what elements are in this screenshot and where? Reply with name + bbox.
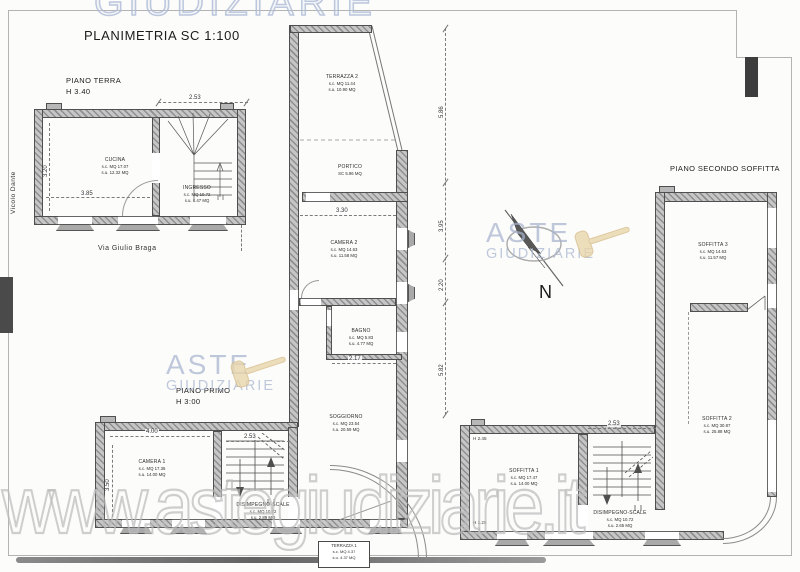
- window-opening: [645, 531, 679, 540]
- scan-artifact-left-bar: [0, 277, 13, 333]
- room-name: SOFFITTA 2: [687, 416, 747, 423]
- room-su: s.u. 25.88 MQ: [687, 429, 747, 435]
- dim-terra-depth: 3.20: [43, 165, 49, 177]
- dim-line: [112, 445, 113, 517]
- room-label-portico: PORTICO SC 5.96 MQ: [322, 164, 378, 177]
- window-sill: [120, 527, 152, 534]
- door-opening: [306, 192, 330, 202]
- dim-line: [110, 436, 210, 437]
- wall-chimney: [471, 419, 485, 426]
- dim-line: [46, 197, 150, 198]
- dim-terra-top: 2.53: [188, 95, 202, 101]
- door-opening: [326, 310, 332, 326]
- room-su: s.u. 2.89 MQ: [233, 515, 293, 521]
- dim-tick: [244, 99, 250, 107]
- wall: [655, 192, 777, 202]
- dim-terra-width: 3.85: [80, 191, 94, 197]
- door-opening: [289, 290, 299, 310]
- room-name: CAMERA 1: [122, 459, 182, 466]
- height-label-bottom: H 1.25: [473, 521, 487, 526]
- dim-line: [226, 441, 290, 442]
- dim-line: [588, 428, 656, 429]
- room-name: TERRAZZA 2: [314, 74, 370, 81]
- room-su: s.u. 4.37 MQ: [319, 555, 369, 561]
- dim-line: [158, 102, 248, 103]
- floor-label-primo: PIANO PRIMO H 3:00: [176, 386, 230, 407]
- page-border-step: [736, 10, 737, 57]
- wall: [460, 425, 655, 434]
- door-opening: [152, 153, 160, 183]
- room-su: s.u. 14.00 MQ: [122, 472, 182, 478]
- page-title: PLANIMETRIA SC 1:100: [84, 28, 240, 43]
- door-sill: [116, 224, 160, 231]
- room-name: CAMERA 2: [316, 240, 372, 247]
- room-label-disimpegno-primo: DISIMPEGNO-SCALE s.c. MQ 10.72 s.u. 2.89…: [233, 502, 293, 520]
- room-label-ingresso: INGRESSO s.c. MQ 10.72 s.u. 8.47 MQ: [169, 185, 225, 203]
- door-opening: [301, 298, 321, 306]
- dim-portico-width: 3.30: [335, 208, 349, 214]
- room-name: SOFFITTA 1: [494, 468, 554, 475]
- room-name: BAGNO: [333, 328, 389, 335]
- room-su: s.u. 11.58 MQ: [316, 253, 372, 259]
- north-arrow: N: [497, 198, 577, 302]
- room-su: s.u. 11.57 MQ: [683, 255, 743, 261]
- plan-piano-terra: 2.53 CUCINA s.c. MQ 1: [30, 95, 260, 260]
- window-sill: [188, 224, 228, 231]
- window-opening: [190, 216, 226, 225]
- window-opening: [396, 332, 408, 352]
- window-sill: [56, 224, 94, 231]
- window-sill: [270, 527, 302, 534]
- window-opening: [396, 282, 408, 304]
- window-sill: [643, 539, 681, 546]
- window-opening: [767, 208, 777, 248]
- wall-internal: [690, 303, 748, 312]
- floor-secondo-name: PIANO SECONDO SOFFITTA: [670, 164, 780, 173]
- room-su: s.u. 2.65 MQ: [590, 523, 650, 529]
- wall-chimney: [220, 103, 234, 110]
- dim-chain-line: [445, 28, 446, 415]
- room-label-disimpegno-secondo: DISIMPEGNO-SCALE s.c. MQ 10.72 s.u. 2.65…: [590, 510, 650, 528]
- projection-line: [241, 225, 242, 251]
- room-su: s.u. 10.90 MQ: [314, 87, 370, 93]
- dim-soffitta-stairs-width: 2.53: [607, 421, 621, 427]
- plan-piano-primo-lower: CAMERA 1 s.c. MQ 17.36 s.u. 14.00 MQ DIS…: [88, 415, 440, 572]
- room-label-soffitta3: SOFFITTA 3 s.c. MQ 14.63 s.u. 11.57 MQ: [683, 242, 743, 260]
- door-opening: [213, 497, 222, 519]
- height-label-top: H 2.45: [473, 437, 487, 442]
- room-label-terrazza1: TERRAZZA 1 s.c. MQ 4.37 s.u. 4.37 MQ: [318, 541, 370, 568]
- window-sill: [495, 539, 529, 546]
- wall: [237, 109, 246, 225]
- wall-bagno: [326, 354, 402, 360]
- dim-chain-3: 2.20: [439, 279, 445, 291]
- window-opening: [58, 216, 92, 225]
- floor-label-secondo: PIANO SECONDO SOFFITTA: [650, 164, 800, 175]
- window-opening: [272, 519, 300, 528]
- room-label-camera1: CAMERA 1 s.c. MQ 17.36 s.u. 14.00 MQ: [122, 459, 182, 477]
- window-opening: [396, 228, 408, 250]
- window-opening: [545, 531, 593, 540]
- window-sill: [170, 527, 207, 534]
- room-name: SOFFITTA 3: [683, 242, 743, 249]
- dim-chain-4: 5.82: [439, 364, 445, 376]
- room-name: CUCINA: [87, 157, 143, 164]
- dim-chain-1: 5.86: [439, 106, 445, 118]
- door-opening: [118, 216, 158, 225]
- room-sc: SC 5.96 MQ: [322, 171, 378, 177]
- room-su: s.u. 8.47 MQ: [169, 198, 225, 204]
- floor-primo-name: PIANO PRIMO: [176, 386, 230, 397]
- dim-camera1-depth: 3.50: [105, 479, 111, 491]
- scan-artifact-top-right: [745, 57, 758, 97]
- room-label-soffitta2: SOFFITTA 2 s.c. MQ 30.87 s.u. 25.88 MQ: [687, 416, 747, 434]
- room-label-terrazza2: TERRAZZA 2 s.c. MQ 11.44 s.u. 10.90 MQ: [314, 74, 370, 92]
- room-name: PORTICO: [322, 164, 378, 171]
- room-name: DISIMPEGNO-SCALE: [233, 502, 293, 509]
- room-name: DISIMPEGNO-SCALE: [590, 510, 650, 517]
- wall-chimney: [46, 103, 62, 110]
- wall: [460, 425, 470, 540]
- room-su: s.u. 14.00 MQ: [494, 481, 554, 487]
- curved-wall-inner: [723, 497, 771, 539]
- door-swing-lines: [745, 292, 769, 312]
- dim-bagno-width: 2.17: [348, 356, 362, 362]
- north-label: N: [539, 282, 552, 302]
- room-label-bagno: BAGNO s.c. MQ 5.83 s.u. 4.77 MQ: [333, 328, 389, 346]
- window-opening: [497, 531, 527, 540]
- door-swing-arc: [122, 180, 158, 216]
- scanned-floorplan-page: PLANIMETRIA SC 1:100 PIANO TERRA H 3.40 …: [0, 0, 800, 572]
- wall: [290, 25, 372, 33]
- page-border-top: [8, 10, 736, 11]
- window-opening: [122, 519, 150, 528]
- street-label-vicolo-dante: Vicolo Dante: [10, 150, 17, 214]
- room-su: s.u. 12.32 MQ: [87, 170, 143, 176]
- window-opening: [767, 420, 777, 492]
- wall: [95, 422, 298, 431]
- wall: [34, 109, 43, 225]
- dim-line: [300, 215, 396, 216]
- floor-terra-name: PIANO TERRA: [66, 76, 121, 87]
- floor-primo-height: H 3:00: [176, 397, 230, 408]
- dim-line: [332, 363, 396, 364]
- wall: [655, 192, 665, 510]
- window-opening: [172, 519, 205, 528]
- room-label-soffitta1: SOFFITTA 1 s.c. MQ 17.47 s.u. 14.00 MQ: [494, 468, 554, 486]
- door-opening: [578, 505, 588, 531]
- dim-chain-2: 3.95: [439, 220, 445, 232]
- partition-dashed-line: [688, 312, 689, 424]
- room-label-cucina: CUCINA s.c. MQ 17.07 s.u. 12.32 MQ: [87, 157, 143, 175]
- wall: [289, 25, 299, 427]
- room-su: s.u. 4.77 MQ: [333, 341, 389, 347]
- room-label-camera2: CAMERA 2 s.c. MQ 14.63 s.u. 11.58 MQ: [316, 240, 372, 258]
- dim-camera1-width: 4.00: [145, 429, 159, 435]
- room-name: INGRESSO: [169, 185, 225, 192]
- wall: [95, 422, 105, 528]
- window-sill: [543, 539, 595, 546]
- dim-primo-stairs-width: 2.53: [243, 434, 257, 440]
- floor-label-terra: PIANO TERRA H 3.40: [66, 76, 121, 97]
